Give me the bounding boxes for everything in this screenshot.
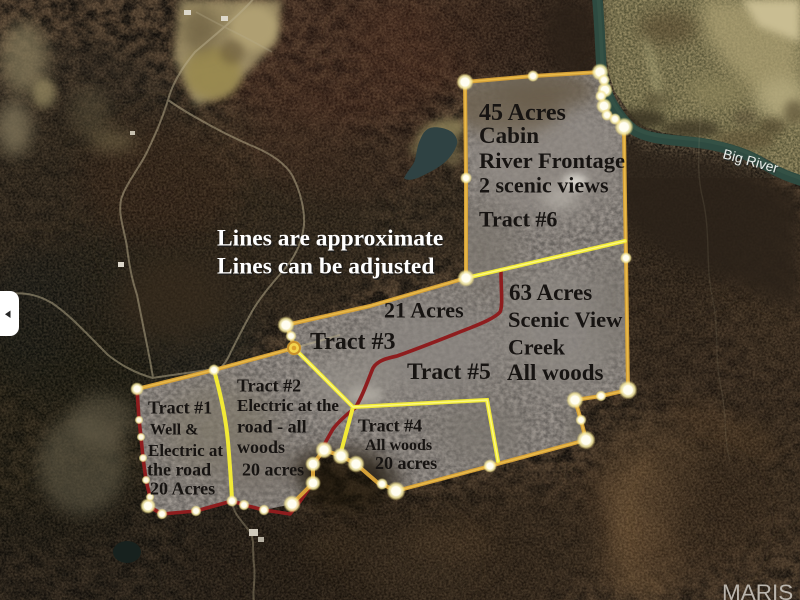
svg-text:Cabin: Cabin — [479, 123, 539, 148]
svg-text:Electric at: Electric at — [148, 441, 223, 460]
svg-text:All woods: All woods — [365, 437, 432, 454]
svg-text:63 Acres: 63 Acres — [509, 280, 592, 305]
svg-text:20 acres: 20 acres — [375, 453, 437, 473]
svg-text:20 acres: 20 acres — [242, 460, 304, 480]
svg-text:River Frontage: River Frontage — [479, 148, 625, 173]
svg-text:21 Acres: 21 Acres — [384, 298, 464, 323]
svg-text:Electric at the: Electric at the — [237, 396, 339, 415]
svg-text:Tract #1: Tract #1 — [148, 398, 212, 418]
svg-text:2 scenic views: 2 scenic views — [479, 173, 609, 198]
svg-text:20 Acres: 20 Acres — [150, 479, 215, 499]
svg-text:Tract #2: Tract #2 — [237, 376, 301, 396]
svg-text:Tract #4: Tract #4 — [358, 416, 422, 436]
svg-text:Creek: Creek — [508, 335, 566, 360]
svg-text:road - all: road - all — [237, 417, 307, 437]
svg-text:the road: the road — [147, 460, 211, 480]
svg-text:Tract #5: Tract #5 — [407, 359, 491, 385]
svg-text:Tract #3: Tract #3 — [310, 329, 396, 355]
svg-text:Lines can be adjusted: Lines can be adjusted — [217, 254, 434, 280]
svg-text:MARIS: MARIS — [722, 580, 793, 600]
svg-text:All woods: All woods — [507, 360, 604, 385]
svg-text:Tract #6: Tract #6 — [479, 207, 557, 232]
svg-text:Well &: Well & — [150, 422, 198, 439]
svg-text:woods: woods — [237, 437, 285, 457]
svg-text:Lines are approximate: Lines are approximate — [217, 226, 443, 252]
svg-text:Scenic View: Scenic View — [508, 307, 623, 332]
